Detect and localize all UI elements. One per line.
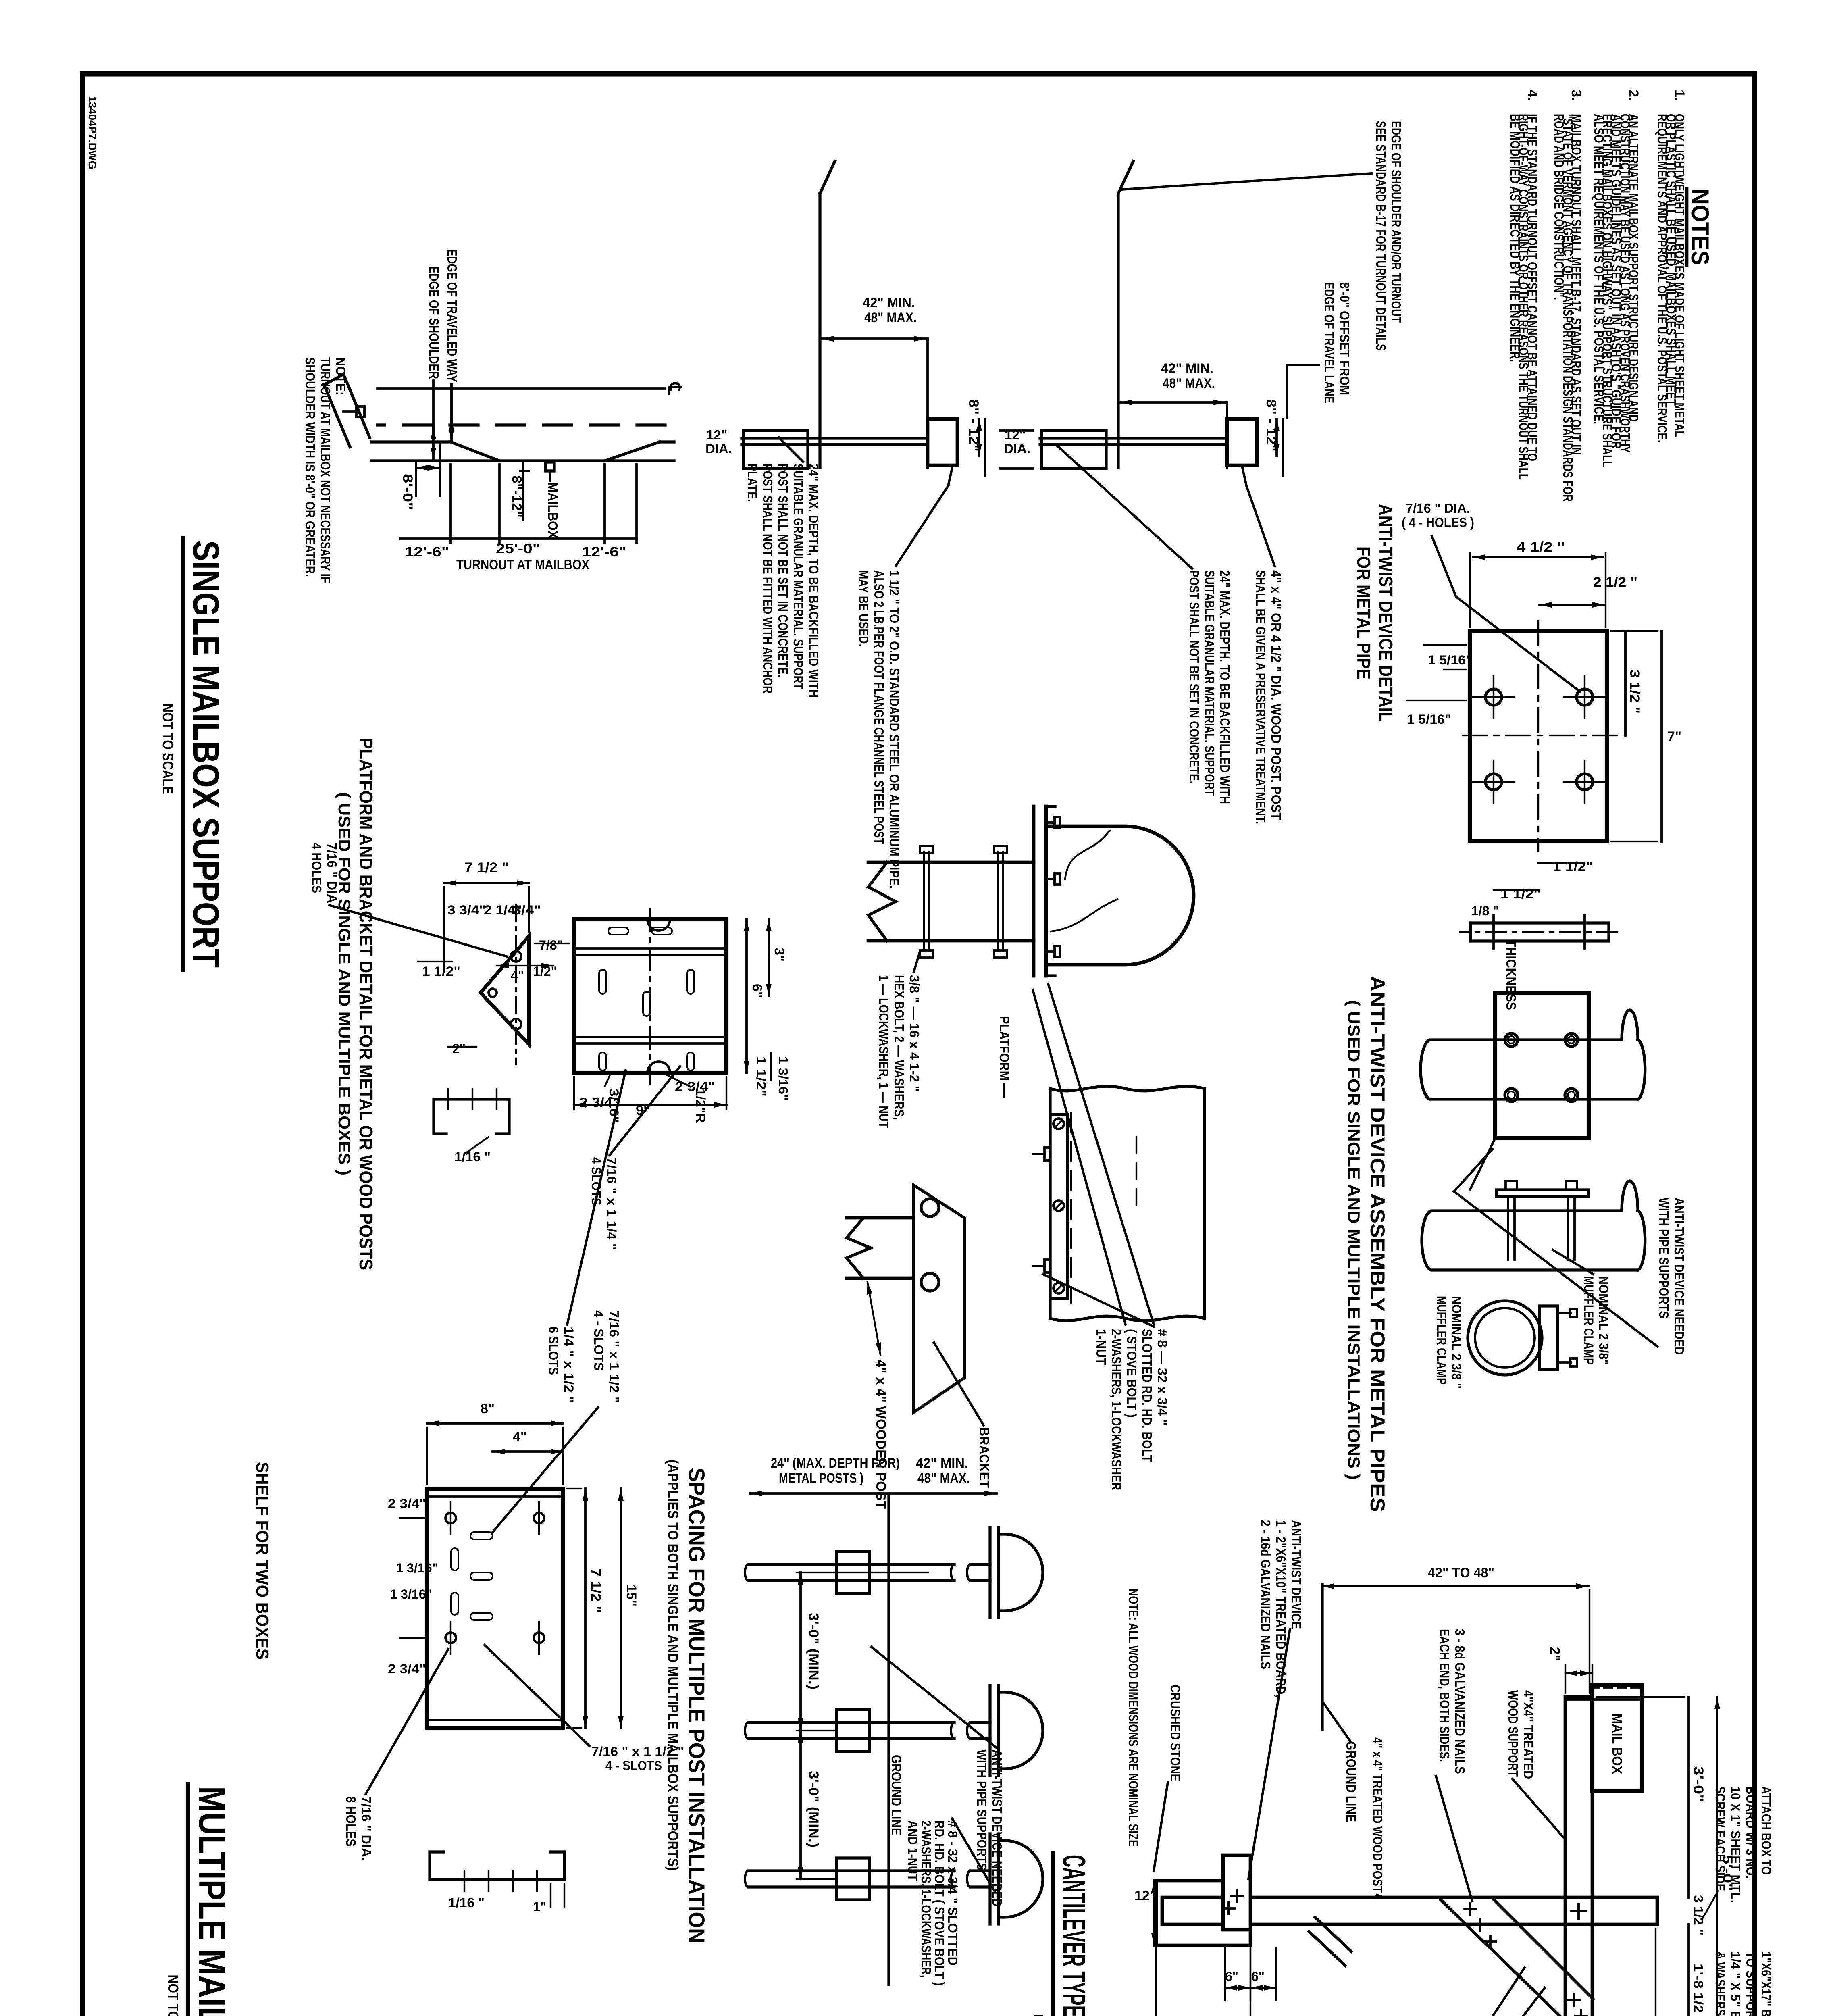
svg-text:NOMINAL 2 3/8 ": NOMINAL 2 3/8 "	[1449, 1296, 1464, 1389]
svg-text:NOTES: NOTES	[1687, 189, 1714, 265]
svg-text:7/16 " x 1 1/2 ": 7/16 " x 1 1/2 "	[607, 1310, 622, 1403]
svg-text:PLATFORM: PLATFORM	[997, 1016, 1012, 1081]
svg-text:NOTE: ALL WOOD DIMENSIONS ARE: NOTE: ALL WOOD DIMENSIONS ARE NOMINAL SI…	[1126, 1589, 1141, 1847]
svg-text:13404P7.DWG: 13404P7.DWG	[86, 96, 98, 169]
svg-text:15": 15"	[624, 1585, 639, 1606]
svg-text:2 3/4": 2 3/4"	[388, 1496, 426, 1511]
svg-text:42" TO 48": 42" TO 48"	[1428, 1565, 1494, 1581]
svg-text:TO SUPPORT W/ (2): TO SUPPORT W/ (2)	[1743, 1951, 1758, 2016]
svg-text:CRUSHED STONE: CRUSHED STONE	[1167, 1685, 1183, 1781]
svg-text:AND 1-NUT: AND 1-NUT	[905, 1820, 920, 1881]
svg-text:2 3/4": 2 3/4"	[579, 1095, 620, 1110]
svg-text:MUFFLER CLAMP: MUFFLER CLAMP	[1434, 1296, 1449, 1385]
svg-text:12": 12"	[706, 427, 727, 442]
svg-text:℄: ℄	[664, 382, 685, 395]
svg-text:BRACKET: BRACKET	[976, 1427, 992, 1488]
svg-text:6": 6"	[1225, 1969, 1238, 1984]
svg-text:1/4 " X 5" BOLTS,: 1/4 " X 5" BOLTS,	[1728, 1951, 1743, 2016]
svg-text:3/4": 3/4"	[513, 903, 541, 917]
svg-text:8 HOLES: 8 HOLES	[343, 1796, 358, 1847]
svg-text:FOR METAL PIPE: FOR METAL PIPE	[1353, 546, 1374, 679]
svg-text:6": 6"	[749, 984, 765, 998]
svg-text:42" MIN.: 42" MIN.	[1161, 361, 1213, 376]
svg-text:3 - 8d GALVANIZED NAILS: 3 - 8d GALVANIZED NAILS	[1452, 1629, 1467, 1774]
svg-text:3'-0" (MIN.): 3'-0" (MIN.)	[806, 1613, 821, 1689]
svg-text:1"X6"X17" BOARD BOLTED: 1"X6"X17" BOARD BOLTED	[1759, 1951, 1774, 2016]
svg-text:24" (MAX. DEPTH FOR): 24" (MAX. DEPTH FOR)	[771, 1456, 900, 1471]
svg-text:2": 2"	[452, 1041, 466, 1056]
svg-text:12'-6": 12'-6"	[405, 544, 449, 560]
svg-text:1 1/2 " TO 2" O.D. STANDARD ST: 1 1/2 " TO 2" O.D. STANDARD STEEL OR ALU…	[887, 570, 902, 889]
svg-text:SEE STANDARD B-17 FOR TURNOUT: SEE STANDARD B-17 FOR TURNOUT DETAILS	[1373, 121, 1388, 351]
svg-text:GROUND LINE: GROUND LINE	[1343, 1741, 1359, 1822]
svg-text:4" x 4" WOODEN POST: 4" x 4" WOODEN POST	[873, 1360, 888, 1509]
svg-text:25'-0": 25'-0"	[496, 541, 540, 556]
svg-text:7/16 " x 1 1/4 ": 7/16 " x 1 1/4 "	[604, 1157, 619, 1250]
svg-text:1 1/2": 1 1/2"	[1553, 859, 1593, 874]
svg-text:EDGE OF TRAVEL LANE: EDGE OF TRAVEL LANE	[1322, 282, 1337, 403]
svg-text:ANTI-TWIST DEVICE: ANTI-TWIST DEVICE	[1289, 1520, 1304, 1629]
svg-text:1 3/16": 1 3/16"	[776, 1056, 791, 1101]
svg-text:CANTILEVER TYPE MAILBOX SINGLE: CANTILEVER TYPE MAILBOX SINGLE SUPPORT	[1056, 1855, 1092, 2016]
svg-text:MULTIPLE MAILBOX SUPPORT: MULTIPLE MAILBOX SUPPORT	[191, 1786, 232, 2016]
svg-text:6 SLOTS: 6 SLOTS	[546, 1327, 561, 1375]
svg-text:EDGE OF TRAVELED WAY: EDGE OF TRAVELED WAY	[445, 249, 460, 382]
svg-text:1 3/16": 1 3/16"	[390, 1587, 432, 1602]
svg-text:48" MAX.: 48" MAX.	[917, 1470, 970, 1486]
svg-text:2 3/4": 2 3/4"	[388, 1662, 426, 1676]
svg-text:4 HOLES: 4 HOLES	[309, 843, 324, 893]
svg-text:PLATFORM AND BRACKET DETAIL FO: PLATFORM AND BRACKET DETAIL FOR METAL OR…	[356, 738, 377, 1270]
svg-text:48" MAX.: 48" MAX.	[864, 310, 917, 325]
svg-text:24" MAX. DEPTH, TO BE BACKFILL: 24" MAX. DEPTH, TO BE BACKFILLED WITH	[806, 464, 821, 698]
svg-text:1/16 ": 1/16 "	[448, 1895, 485, 1910]
svg-text:MAIL BOX: MAIL BOX	[1609, 1714, 1625, 1774]
svg-text:SLOTTED RD. HD. BOLT: SLOTTED RD. HD. BOLT	[1140, 1329, 1155, 1462]
svg-text:4.: 4.	[1525, 90, 1540, 101]
svg-text:2-WASHERS, 1-LOCKWASHER: 2-WASHERS, 1-LOCKWASHER	[1109, 1329, 1124, 1490]
svg-text:42" MIN.: 42" MIN.	[863, 295, 915, 310]
svg-text:# 8 - 32 x 3/4 " SLOTTED: # 8 - 32 x 3/4 " SLOTTED	[945, 1820, 960, 1966]
svg-text:1/2"R: 1/2"R	[693, 1089, 708, 1123]
svg-text:42" MIN.: 42" MIN.	[916, 1456, 968, 1471]
svg-text:( USED FOR SINGLE AND MULTIPLE: ( USED FOR SINGLE AND MULTIPLE BOXES )	[335, 792, 354, 1175]
svg-text:2.: 2.	[1626, 90, 1641, 101]
svg-text:BOARD W/ 3 NO.: BOARD W/ 3 NO.	[1743, 1786, 1758, 1879]
svg-text:1": 1"	[533, 1899, 546, 1914]
svg-text:ANTI-TWIST DEVICE NEEDED: ANTI-TWIST DEVICE NEEDED	[1672, 1198, 1687, 1355]
svg-text:7": 7"	[1667, 729, 1681, 744]
svg-text:1 5/16": 1 5/16"	[1428, 653, 1472, 667]
svg-text:( USED FOR SINGLE AND MULTIPLE: ( USED FOR SINGLE AND MULTIPLE INSTALLAT…	[1344, 1000, 1363, 1480]
svg-text:ATTACH BOX TO: ATTACH BOX TO	[1759, 1786, 1774, 1875]
svg-text:ANTI-TWIST DEVICE NEEDED: ANTI-TWIST DEVICE NEEDED	[990, 1749, 1005, 1907]
svg-text:3'-0": 3'-0"	[1691, 1766, 1706, 1802]
svg-text:MAY BE USED.: MAY BE USED.	[856, 570, 871, 647]
svg-text:& WASHERS: & WASHERS	[1713, 1951, 1728, 2016]
svg-text:SHALL BE GIVEN A PRESERVATIVE: SHALL BE GIVEN A PRESERVATIVE TREATMENT.	[1253, 570, 1268, 824]
svg-text:WITH PIPE SUPPORTS: WITH PIPE SUPPORTS	[1656, 1198, 1671, 1318]
svg-text:10 X 1" SHEET MTL.: 10 X 1" SHEET MTL.	[1728, 1786, 1743, 1903]
svg-text:1.: 1.	[1672, 90, 1687, 101]
svg-text:3.: 3.	[1569, 90, 1584, 101]
svg-text:NOTE:: NOTE:	[333, 357, 348, 396]
svg-text:POST SHALL NOT BE SET IN CONCR: POST SHALL NOT BE SET IN CONCRETE.	[1187, 570, 1202, 784]
svg-text:2 1/2 ": 2 1/2 "	[1593, 575, 1637, 590]
svg-text:SUITABLE GRANULAR MATERIAL. SU: SUITABLE GRANULAR MATERIAL. SUPPORT	[791, 464, 806, 689]
svg-text:ALSO 2 LB.PER FOOT FLANGE CHAN: ALSO 2 LB.PER FOOT FLANGE CHANNEL STEEL …	[872, 570, 886, 844]
svg-text:1 - 2"X6"X10" TREATED BOARD,: 1 - 2"X6"X10" TREATED BOARD,	[1273, 1520, 1288, 1697]
svg-text:ALSO MEET REQUIREMENTS OF THE: ALSO MEET REQUIREMENTS OF THE U.S. POSTA…	[1592, 114, 1606, 424]
svg-text:PLATE.: PLATE.	[745, 464, 760, 502]
svg-text:RD. HD. BOLT ( STOVE BOLT ): RD. HD. BOLT ( STOVE BOLT )	[932, 1820, 947, 1986]
svg-text:4 1/2 ": 4 1/2 "	[1517, 539, 1565, 555]
svg-text:GROUND LINE: GROUND LINE	[888, 1755, 904, 1835]
svg-text:SCREW EACH SIDE: SCREW EACH SIDE	[1713, 1786, 1728, 1891]
svg-text:NOMINAL 2 3/8": NOMINAL 2 3/8"	[1596, 1276, 1611, 1365]
svg-text:ANTI-TWIST DEVICE ASSEMBLY FOR: ANTI-TWIST DEVICE ASSEMBLY FOR METAL PIP…	[1366, 976, 1389, 1512]
svg-text:7/16 " x 1 1/2 ": 7/16 " x 1 1/2 "	[591, 1744, 684, 1759]
svg-text:MAILBOX: MAILBOX	[545, 482, 560, 539]
svg-text:NOT TO SCALE: NOT TO SCALE	[160, 704, 176, 794]
svg-text:EDGE OF SHOULDER: EDGE OF SHOULDER	[427, 266, 441, 379]
svg-text:24" MAX. DEPTH. TO BE BACKFILL: 24" MAX. DEPTH. TO BE BACKFILLED WITH	[1217, 570, 1232, 804]
svg-text:( STOVE BOLT ): ( STOVE BOLT )	[1124, 1329, 1139, 1418]
svg-text:7/8": 7/8"	[539, 938, 563, 952]
svg-text:9": 9"	[636, 1103, 650, 1118]
svg-text:1 5/16": 1 5/16"	[1407, 712, 1451, 727]
svg-text:1/8 ": 1/8 "	[1471, 904, 1499, 918]
svg-text:METAL POSTS ): METAL POSTS )	[779, 1470, 863, 1486]
svg-text:4" x 4" OR 4 1/2 " DIA. WOOD P: 4" x 4" OR 4 1/2 " DIA. WOOD POST. POST	[1269, 570, 1284, 820]
svg-text:8": 8"	[481, 1401, 495, 1416]
svg-text:3/8 " — 16 x 4 1-2 ": 3/8 " — 16 x 4 1-2 "	[907, 975, 922, 1092]
svg-text:1 1/2": 1 1/2"	[754, 1056, 768, 1097]
svg-text:1 1/2": 1 1/2"	[422, 964, 460, 979]
svg-text:SPACING FOR MULTIPLE POST INST: SPACING FOR MULTIPLE POST INSTALLATION	[684, 1468, 709, 1943]
svg-text:REQUIREMENTS AND APPROVAL OF T: REQUIREMENTS AND APPROVAL OF THE U.S. PO…	[1655, 114, 1670, 443]
svg-text:TURNOUT AT MAILBOX: TURNOUT AT MAILBOX	[456, 557, 589, 573]
svg-text:4"X4" TREATED: 4"X4" TREATED	[1521, 1690, 1536, 1779]
svg-text:ROAD AND BRIDGE CONSTRUCTION".: ROAD AND BRIDGE CONSTRUCTION".	[1552, 114, 1567, 300]
svg-text:NOT TO SCALE: NOT TO SCALE	[1030, 2014, 1046, 2016]
svg-text:1/4 " x 1/2 ": 1/4 " x 1/2 "	[562, 1327, 576, 1403]
svg-text:6": 6"	[1251, 1969, 1265, 1984]
svg-text:EACH END, BOTH SIDES.: EACH END, BOTH SIDES.	[1437, 1629, 1452, 1762]
svg-text:TURNOUT AT MAILBOX NOT NECESSA: TURNOUT AT MAILBOX NOT NECESSARY IF	[318, 357, 333, 583]
svg-text:8'-0": 8'-0"	[400, 474, 415, 510]
svg-text:SHOULDER WIDTH IS 8'-0" OR GRE: SHOULDER WIDTH IS 8'-0" OR GREATER.	[303, 357, 318, 577]
svg-text:1 3/16": 1 3/16"	[396, 1561, 438, 1575]
svg-text:1 — LOCKWASHER, 1 — NUT: 1 — LOCKWASHER, 1 — NUT	[876, 975, 891, 1128]
svg-text:2 - 16d GALVANIZED NAILS: 2 - 16d GALVANIZED NAILS	[1258, 1520, 1273, 1669]
svg-text:7 1/2 ": 7 1/2 "	[588, 1568, 603, 1613]
svg-text:4": 4"	[513, 1429, 527, 1445]
svg-text:SHELF FOR TWO BOXES: SHELF FOR TWO BOXES	[252, 1462, 272, 1660]
svg-text:8'-0" OFFSET FROM: 8'-0" OFFSET FROM	[1337, 282, 1352, 395]
svg-text:3'-0" (MIN.): 3'-0" (MIN.)	[806, 1771, 821, 1847]
svg-text:1/16 ": 1/16 "	[454, 1150, 491, 1164]
svg-text:NOT TO SCALE: NOT TO SCALE	[165, 1975, 181, 2016]
svg-text:1 1/2": 1 1/2"	[1500, 887, 1541, 901]
svg-text:MUFFLER CLAMP: MUFFLER CLAMP	[1581, 1276, 1596, 1365]
svg-text:4 - SLOTS: 4 - SLOTS	[591, 1310, 606, 1371]
svg-text:4" x 4" TREATED WOOD POST: 4" x 4" TREATED WOOD POST	[1370, 1737, 1385, 1893]
svg-text:4": 4"	[511, 968, 524, 983]
svg-text:1'-8 1/2 ": 1'-8 1/2 "	[1691, 1964, 1706, 2016]
svg-text:12": 12"	[1134, 1888, 1156, 1904]
svg-text:4 - SLOTS: 4 - SLOTS	[605, 1758, 662, 1773]
svg-text:POST SHALL NOT BE SET IN CONCR: POST SHALL NOT BE SET IN CONCRETE.	[776, 464, 791, 677]
svg-text:DIA.: DIA.	[705, 441, 732, 456]
svg-text:1-NUT: 1-NUT	[1094, 1329, 1109, 1365]
svg-text:EDGE OF SHOULDER AND/OR TURNOU: EDGE OF SHOULDER AND/OR TURNOUT	[1389, 121, 1404, 323]
svg-text:(APPLIES TO BOTH SINGLE AND MU: (APPLIES TO BOTH SINGLE AND MULTIPLE MAI…	[665, 1460, 681, 1871]
svg-text:DIA.: DIA.	[1004, 441, 1030, 456]
svg-text:BE MODIFIED AS DIRECTED BY THE: BE MODIFIED AS DIRECTED BY THE ENGINEER.	[1508, 114, 1523, 362]
svg-text:THICKNESS: THICKNESS	[1504, 939, 1519, 1010]
svg-text:7/16 " DIA.: 7/16 " DIA.	[359, 1796, 374, 1861]
svg-text:POST SHALL NOT BE FITTED WITH: POST SHALL NOT BE FITTED WITH ANCHOR	[760, 464, 775, 694]
svg-text:ANTI-TWIST DEVICE DETAIL: ANTI-TWIST DEVICE DETAIL	[1375, 504, 1396, 722]
svg-text:3 1/2 ": 3 1/2 "	[1627, 669, 1642, 714]
svg-text:# 8 — 32 x 3/4 ": # 8 — 32 x 3/4 "	[1155, 1329, 1170, 1426]
svg-text:7/16 " DIA.: 7/16 " DIA.	[1406, 501, 1470, 516]
svg-text:( 4 - HOLES ): ( 4 - HOLES )	[1402, 515, 1474, 530]
svg-text:HEX BOLT, 2 — WASHERS,: HEX BOLT, 2 — WASHERS,	[892, 975, 907, 1120]
svg-text:7 1/2 ": 7 1/2 "	[464, 860, 509, 875]
svg-text:SINGLE MAILBOX SUPPORT: SINGLE MAILBOX SUPPORT	[185, 540, 227, 968]
svg-text:SUITABLE GRANULAR MATERIAL. SU: SUITABLE GRANULAR MATERIAL. SUPPORT	[1202, 570, 1217, 796]
svg-text:3 3/4": 3 3/4"	[447, 903, 486, 917]
svg-text:WOOD SUPPORT: WOOD SUPPORT	[1506, 1690, 1521, 1777]
svg-text:48" MAX.: 48" MAX.	[1163, 376, 1215, 391]
svg-text:3": 3"	[772, 948, 787, 962]
svg-text:2": 2"	[1547, 1647, 1562, 1661]
svg-text:WITH PIPE SUPPORTS: WITH PIPE SUPPORTS	[974, 1749, 989, 1870]
svg-text:2-WASHERS, 1-LOCKWASHER,: 2-WASHERS, 1-LOCKWASHER,	[919, 1820, 934, 1978]
